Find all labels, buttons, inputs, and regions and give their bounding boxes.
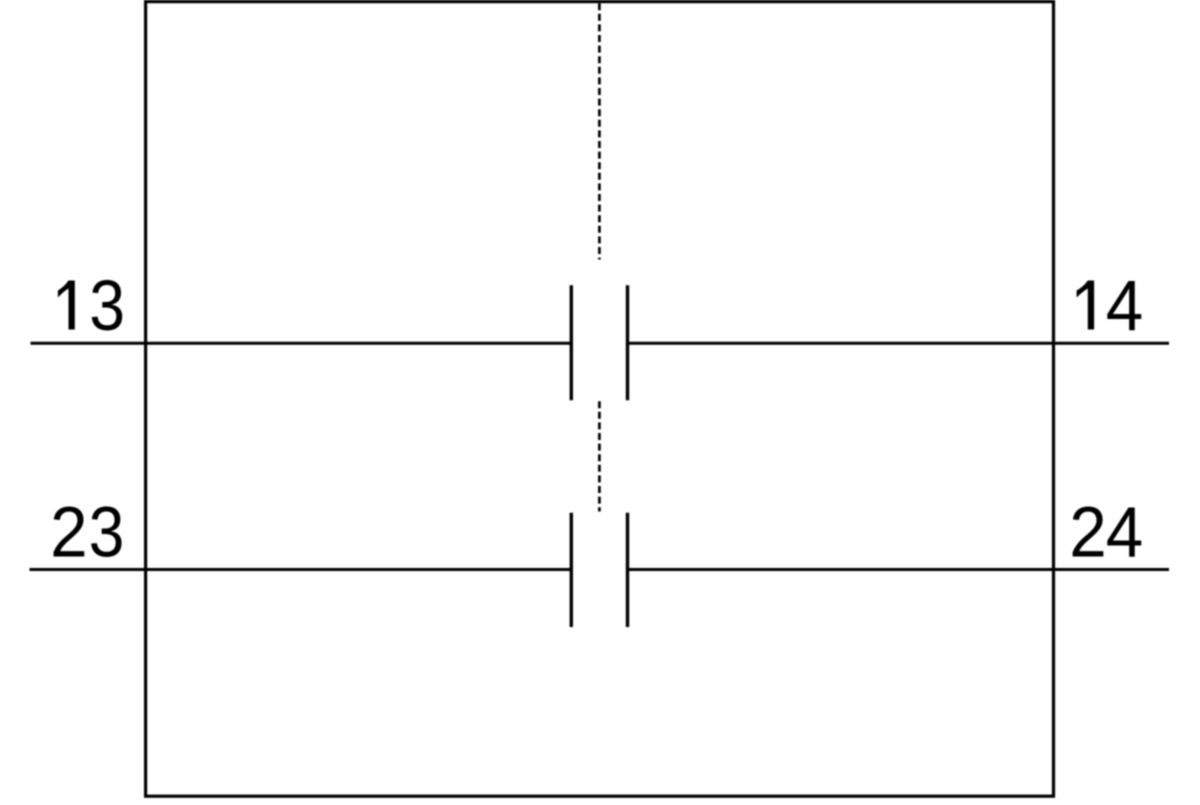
svg-text:2: 2 — [1069, 494, 1107, 573]
svg-text:3: 3 — [89, 267, 125, 346]
svg-text:2: 2 — [50, 494, 88, 573]
svg-text:3: 3 — [89, 494, 125, 573]
svg-text:4: 4 — [1106, 494, 1144, 573]
svg-text:4: 4 — [1106, 267, 1144, 346]
